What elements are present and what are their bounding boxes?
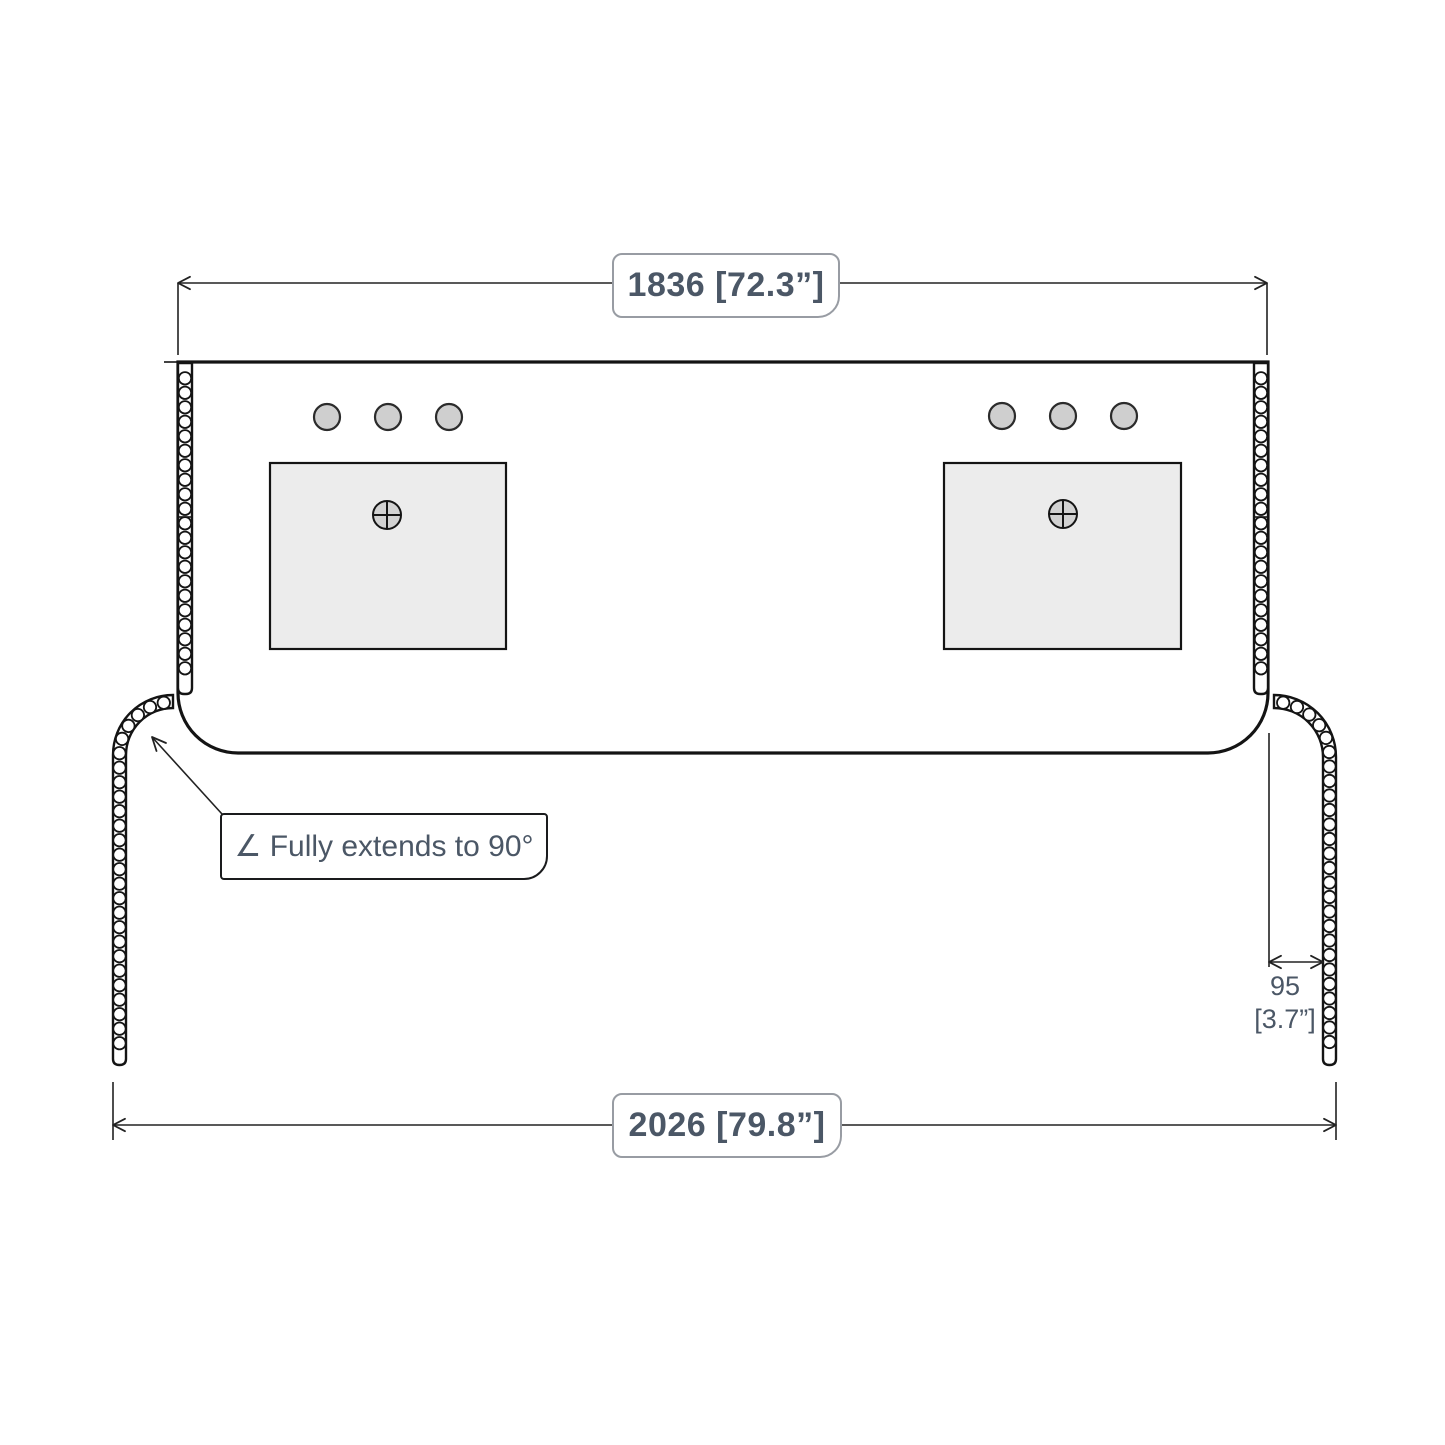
faucet-hole — [989, 403, 1015, 429]
faucet-hole — [1050, 403, 1076, 429]
callout-fully-extends: ∠ Fully extends to 90° — [220, 813, 548, 880]
faucet-hole — [375, 404, 401, 430]
right-sink-basin — [944, 463, 1181, 649]
countertop-drawing-svg — [0, 0, 1445, 1445]
left-hinge-guide-knuckles — [179, 372, 191, 674]
right-hinge-guide-knuckles — [1255, 372, 1267, 674]
faucet-hole — [436, 404, 462, 430]
technical-drawing-canvas: 1836 [72.3”] 2026 [79.8”] ∠ Fully extend… — [0, 0, 1445, 1445]
left-flap-guide — [120, 702, 172, 1058]
left-flap-guide-knuckles — [113, 697, 170, 1050]
left-drain-icon — [373, 501, 401, 529]
dimension-text: 1836 [72.3”] — [628, 266, 825, 305]
callout-text: ∠ Fully extends to 90° — [234, 829, 533, 864]
faucet-holes-left — [314, 404, 462, 430]
left-sink-basin — [270, 463, 506, 649]
dimension-label-top-width: 1836 [72.3”] — [612, 253, 840, 318]
dimension-flap-depth-unit: [3.7”] — [1242, 1004, 1328, 1035]
dimension-flap-depth — [1269, 733, 1323, 968]
faucet-holes-right — [989, 403, 1137, 429]
dimension-label-bottom-width: 2026 [79.8”] — [612, 1093, 842, 1158]
dimension-text: 2026 [79.8”] — [629, 1106, 826, 1145]
right-drain-icon — [1049, 500, 1077, 528]
faucet-hole — [314, 404, 340, 430]
dimension-flap-depth-value: 95 — [1248, 971, 1322, 1002]
faucet-hole — [1111, 403, 1137, 429]
